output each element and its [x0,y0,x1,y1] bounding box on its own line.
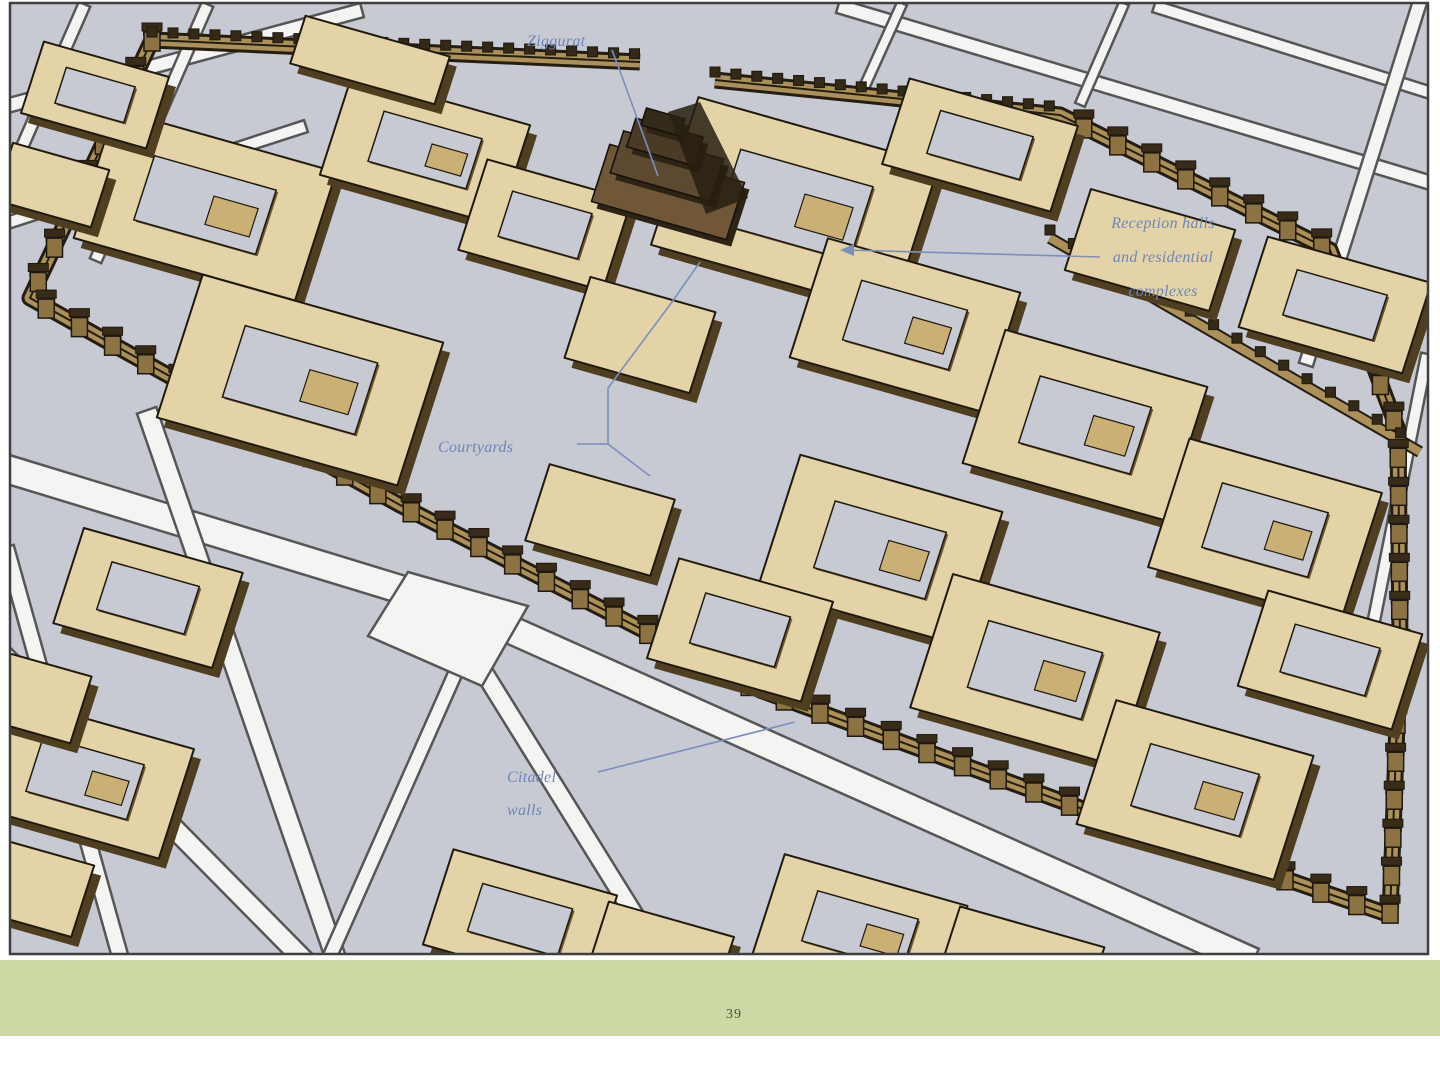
crenellation [630,49,640,59]
tower-cap [810,695,830,703]
crenellation [1302,374,1312,384]
tower-cap [1389,515,1409,523]
tower-cap [1390,591,1410,599]
tower [1391,562,1407,581]
tower [1388,752,1404,771]
tower-cap [1142,144,1162,152]
tower-cap [1244,195,1264,203]
figure-clip-group: Ziggurat Reception halls and residential… [0,3,1438,958]
book-page: Ziggurat Reception halls and residential… [0,0,1440,1080]
crenellation [441,40,451,50]
tower-cap [1074,110,1094,118]
tower-cap [1386,743,1406,751]
crenellation [1232,333,1242,343]
tower-cap [1210,178,1230,186]
tower-cap [103,327,123,335]
tower-cap [1347,887,1367,895]
tower [1212,187,1228,206]
crenellation [168,28,178,38]
crenellation [794,75,804,85]
crenellation [147,27,157,37]
tower [105,336,121,355]
tower-cap [1384,781,1404,789]
crenellation [1396,428,1406,438]
tower [47,238,63,257]
tower [1385,828,1401,847]
tower [38,299,54,318]
tower [1386,790,1402,809]
crenellation [252,32,262,42]
crenellation [273,33,283,43]
crenellation [1325,387,1335,397]
tower [437,520,453,539]
tower [30,272,46,291]
tower-cap [1381,857,1401,865]
tower-cap [503,546,523,554]
label-ziggurat: Ziggurat [527,33,586,50]
tower-cap [126,57,146,65]
tower-cap [604,598,624,606]
tower [883,730,899,749]
tower [606,607,622,626]
tower [1062,796,1078,815]
label-courtyards: Courtyards [438,439,513,456]
tower-cap [1384,402,1404,410]
tower [1386,411,1402,430]
tower-cap [1060,787,1080,795]
footer-bar: 39 [0,960,1440,1036]
tower-cap [435,511,455,519]
tower [71,318,87,337]
crenellation [731,69,741,79]
tower-cap [36,290,56,298]
tower-cap [1389,553,1409,561]
crenellation [462,41,472,51]
crenellation [588,47,598,57]
crenellation [231,31,241,41]
tower [955,757,971,776]
tower-cap [1312,229,1332,237]
crenellation [752,71,762,81]
tower [1390,448,1406,467]
tower [1383,866,1399,885]
tower-cap [953,748,973,756]
tower-cap [917,735,937,743]
tower-cap [1024,774,1044,782]
tower [848,717,864,736]
tower [1026,783,1042,802]
tower-cap [45,229,65,237]
tower [1349,896,1365,915]
tower [1178,170,1194,189]
label-citadel-walls-line2: walls [507,802,542,819]
tower [1144,153,1160,172]
tower-cap [881,721,901,729]
crenellation [504,43,514,53]
tower [1391,524,1407,543]
crenellation [1044,101,1054,111]
tower [812,704,828,723]
tower-cap [988,761,1008,769]
crenellation [877,84,887,94]
page-number: 39 [726,1007,742,1023]
tower-cap [28,263,48,271]
crenellation [1255,347,1265,357]
tower [138,355,154,374]
crenellation [814,78,824,88]
tower-cap [1311,874,1331,882]
crenellation [1045,225,1055,235]
tower-cap [136,346,156,354]
tower-cap [1108,127,1128,135]
tower-cap [69,309,89,317]
tower-cap [469,529,489,537]
tower-cap [570,581,590,589]
tower-cap [536,563,556,571]
tower-cap [1278,212,1298,220]
crenellation [1209,320,1219,330]
label-reception-line1: Reception halls [1110,215,1215,232]
crenellation [189,29,199,39]
crenellation [1372,414,1382,424]
tower [471,538,487,557]
crenellation [856,82,866,92]
crenellation [710,67,720,77]
tower-cap [1383,819,1403,827]
crenellation [210,30,220,40]
crenellation [1023,99,1033,109]
crenellation [483,42,493,52]
label-citadel-walls-line1: Citadel [507,769,556,786]
tower [1110,136,1126,155]
tower [919,744,935,763]
tower [505,555,521,574]
tower-cap [1380,895,1400,903]
tower [1392,600,1408,619]
tower [403,503,419,522]
tower [1382,904,1398,923]
tower [572,590,588,609]
tower-cap [846,708,866,716]
tower-cap [1176,161,1196,169]
tower [1391,486,1407,505]
tower [1313,883,1329,902]
label-reception-line2: and residential [1113,249,1214,266]
tower [538,572,554,591]
crenellation [773,73,783,83]
label-reception-line3: complexes [1128,283,1197,300]
tower-cap [1388,439,1408,447]
crenellation [1279,360,1289,370]
tower-cap [1389,477,1409,485]
tower [1246,204,1262,223]
crenellation [1349,401,1359,411]
crenellation [835,80,845,90]
tower [990,770,1006,789]
tower [1372,376,1388,395]
citadel-reconstruction-figure: Ziggurat Reception halls and residential… [0,0,1440,958]
tower-cap [638,615,658,623]
tower [1280,221,1296,240]
